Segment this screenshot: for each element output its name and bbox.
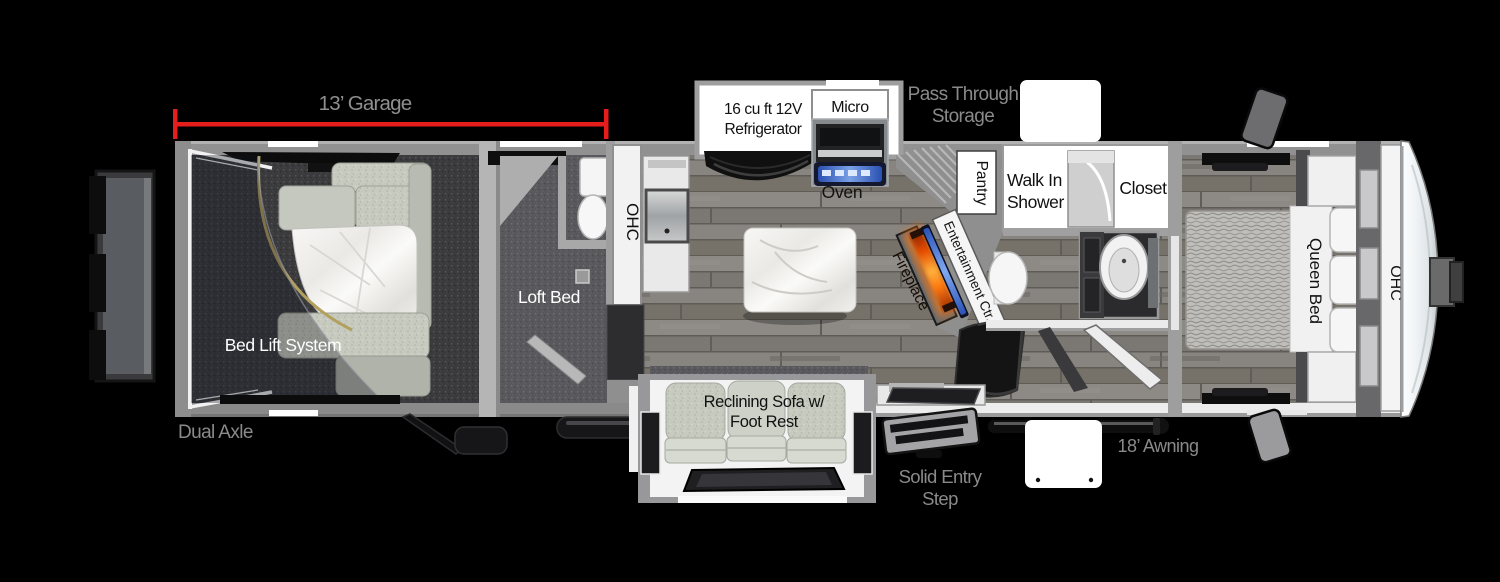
svg-text:Oven: Oven [822,182,863,202]
svg-text:Solid Entry: Solid Entry [899,466,983,487]
svg-text:Pass Through: Pass Through [908,84,1019,105]
svg-text:Foot Rest: Foot Rest [730,413,799,431]
svg-text:Dual Axle: Dual Axle [178,422,253,443]
svg-text:Storage: Storage [932,106,994,127]
svg-text:Closet: Closet [1119,178,1167,198]
svg-text:16 cu ft 12V: 16 cu ft 12V [724,101,803,118]
svg-text:18’ Awning: 18’ Awning [1117,436,1198,456]
svg-text:Reclining Sofa w/: Reclining Sofa w/ [704,393,825,411]
svg-text:Shower: Shower [1007,192,1065,212]
svg-text:Step: Step [922,488,958,509]
svg-text:Bed Lift System: Bed Lift System [225,335,342,355]
svg-text:Queen Bed: Queen Bed [1306,238,1325,324]
svg-text:OHC: OHC [623,203,642,241]
svg-text:13’ Garage: 13’ Garage [319,92,412,115]
svg-text:Walk In: Walk In [1007,170,1062,190]
svg-text:Micro: Micro [831,99,869,116]
svg-text:Refrigerator: Refrigerator [724,121,801,138]
svg-text:Loft Bed: Loft Bed [518,287,580,307]
svg-text:Pantry: Pantry [973,161,990,206]
